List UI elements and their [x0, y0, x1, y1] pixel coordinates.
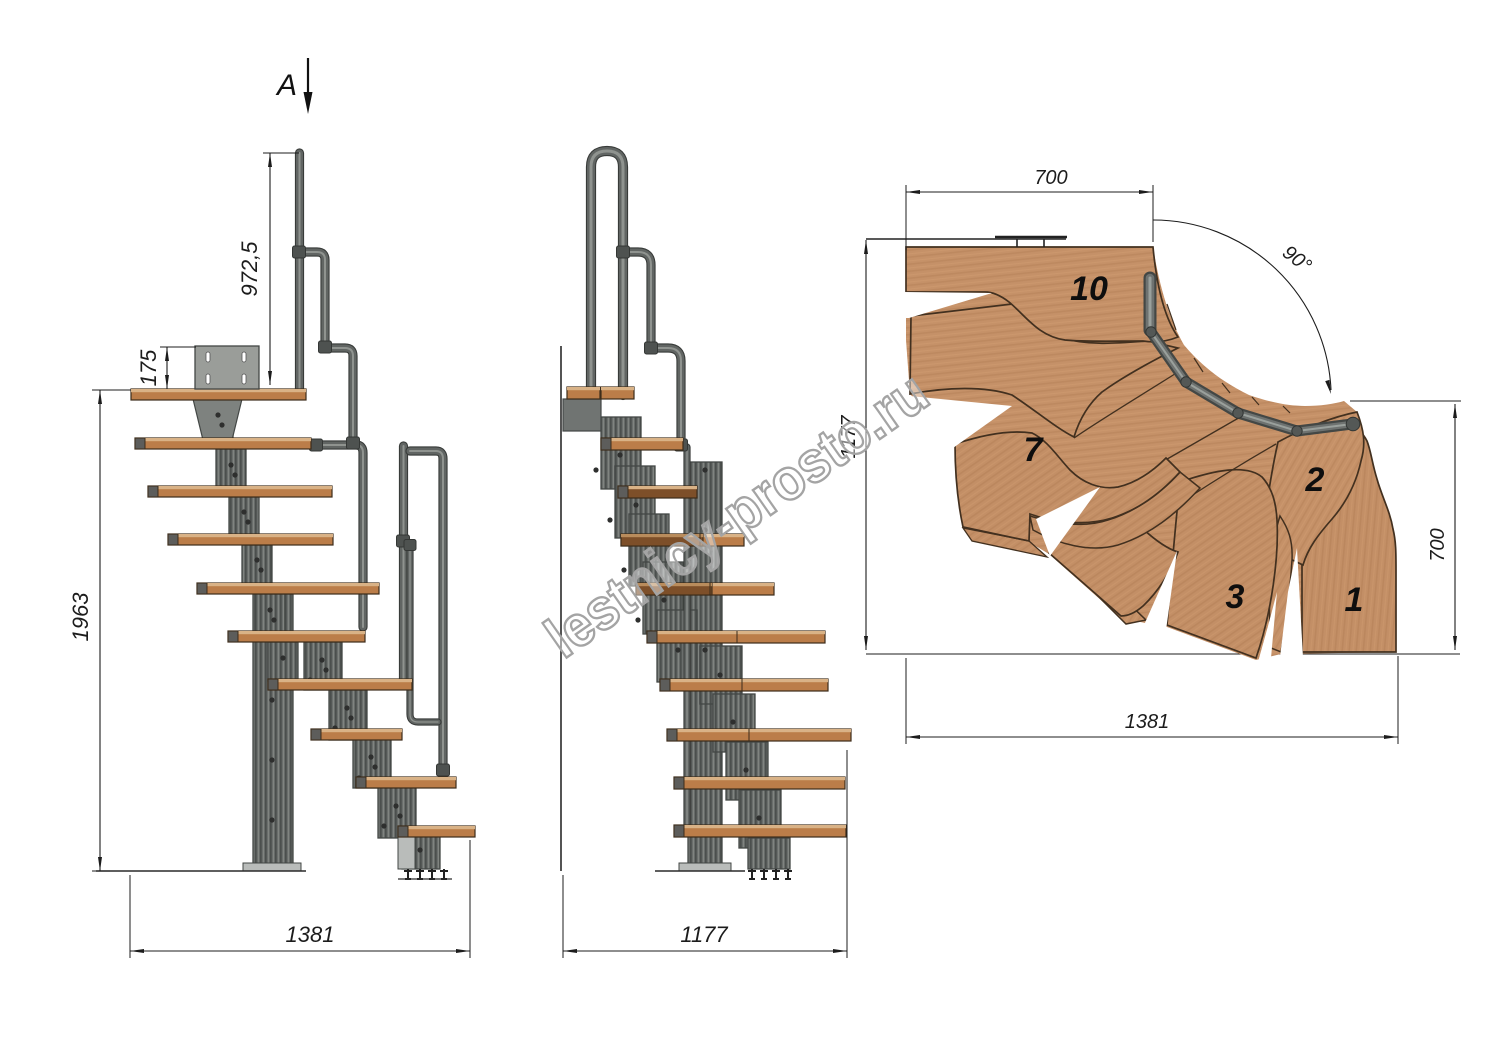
svg-text:1177: 1177: [680, 922, 728, 947]
svg-text:1: 1: [1345, 581, 1364, 619]
svg-text:700: 700: [1034, 167, 1067, 189]
svg-text:A: A: [275, 69, 297, 102]
svg-text:7: 7: [1024, 431, 1045, 469]
svg-text:700: 700: [1427, 528, 1449, 561]
svg-text:1381: 1381: [1125, 711, 1170, 733]
svg-text:2: 2: [1305, 461, 1325, 499]
svg-text:175: 175: [136, 349, 161, 386]
svg-text:10: 10: [1070, 270, 1108, 308]
svg-text:1963: 1963: [68, 592, 93, 642]
svg-text:972,5: 972,5: [237, 241, 262, 297]
svg-text:1381: 1381: [286, 922, 335, 947]
svg-text:3: 3: [1226, 578, 1245, 616]
